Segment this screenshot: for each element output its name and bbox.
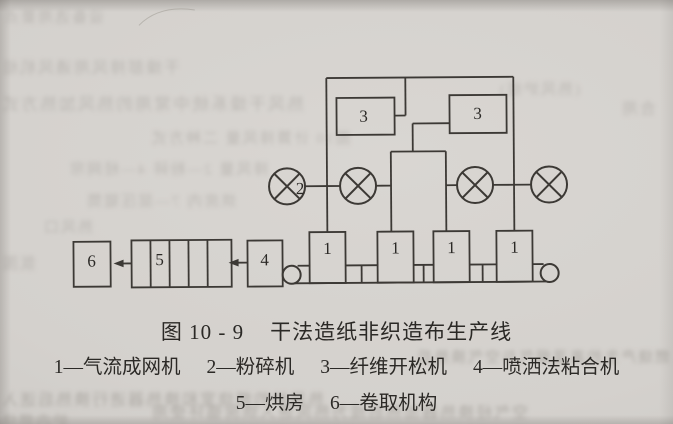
former-label: 1	[510, 238, 519, 257]
former-label: 1	[447, 238, 456, 257]
duct-left-leg	[326, 78, 327, 232]
spray-bonder: 4	[247, 240, 282, 286]
former-label: 1	[323, 239, 332, 258]
crusher-fan-3	[446, 167, 514, 203]
mid-duct-right	[446, 151, 447, 231]
figure-legend-row-2: 5—烘房6—卷取机构	[0, 386, 673, 415]
fiber-opener-right: 3	[412, 95, 506, 152]
legend-item: 4—喷洒法粘合机	[473, 350, 619, 379]
duct-right-leg	[513, 77, 514, 231]
air-lay-formers: 1 1 1 1	[309, 231, 532, 284]
fiber-opener-label: 3	[359, 107, 368, 126]
drying-room-label: 5	[155, 250, 164, 269]
figure-legend-row-1: 1—气流成网机2—粉碎机3—纤维开松机4—喷洒法粘合机	[0, 350, 673, 379]
duct-top-line	[326, 77, 513, 78]
mid-duct-left	[391, 152, 392, 232]
legend-item: 1—气流成网机	[54, 350, 181, 379]
flow-arrow-left-2	[114, 260, 132, 268]
legend-item: 3—纤维开松机	[320, 350, 447, 379]
crusher-label: 2	[296, 179, 305, 198]
figure-number: 图 10 - 9	[161, 320, 244, 344]
arrow-head	[114, 260, 124, 268]
legend-item: 2—粉碎机	[206, 350, 294, 379]
photo-artifact-hair	[139, 9, 195, 26]
fiber-opener-label: 3	[473, 104, 482, 123]
spray-bonder-label: 4	[260, 250, 269, 269]
production-line-diagram: 3 3 2	[0, 0, 673, 312]
winder: 6	[73, 242, 110, 287]
crusher-fan-2	[327, 168, 391, 204]
legend-item: 6—卷取机构	[330, 386, 437, 415]
crusher-fan-4	[514, 166, 567, 202]
fiber-opener-left: 3	[336, 78, 405, 135]
figure-title: 干法造纸非织造布生产线	[270, 320, 512, 344]
overhead-duct	[326, 77, 514, 232]
belt-roller-right	[541, 264, 559, 282]
crusher-fan-1: 2	[269, 168, 327, 204]
legend-item: 5—烘房	[236, 386, 304, 415]
belt-roller-left	[283, 266, 301, 284]
winder-label: 6	[87, 252, 96, 271]
arrow-head	[229, 259, 239, 267]
former-label: 1	[391, 238, 400, 257]
book-page-photo: 设备选用要点 干燥部排风用通风机组 热风干燥系统中常用的热风加热方式 (热风炉组…	[0, 0, 673, 424]
drying-room-box	[131, 240, 231, 288]
figure-caption: 图 10 - 9干法造纸非织造布生产线	[0, 316, 673, 346]
drying-room: 5	[131, 240, 231, 288]
